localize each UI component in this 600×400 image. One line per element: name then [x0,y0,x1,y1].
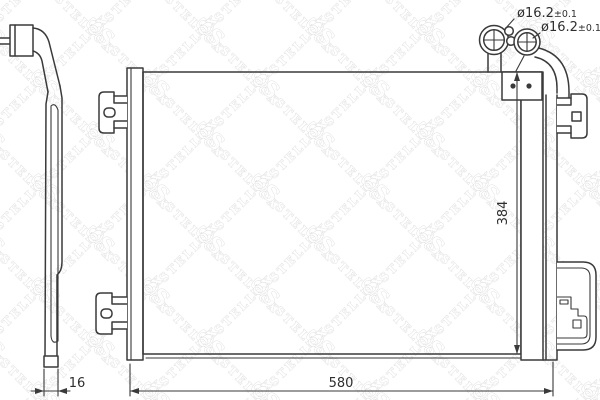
port-top-tolerance: ±0.1 [554,9,577,20]
stellox-watermark: SSTELLOXSSTELLOXSSTELLOXSSTELLOXSSTELLOX… [0,0,600,400]
port-leader-line [516,56,524,71]
port-top-value: ø16.2 [517,6,554,21]
right-tank [521,72,543,360]
dim-label-height: 384 [496,201,511,226]
watermark-text: SSTELLOX [0,387,14,400]
pipe-foot [44,356,58,367]
dim-label-port-side: ø16.2±0.1 [541,20,600,35]
bracket-body [99,92,127,133]
left-tank [127,68,143,360]
port-side-value: ø16.2 [541,20,578,35]
mounting-bracket-top-right [557,94,587,138]
port-side-tolerance: ±0.1 [578,23,600,34]
bolt-hole-right [526,83,531,88]
mounting-bracket-bottom-left [96,293,127,334]
arrow-right [544,388,553,394]
technical-drawing-condenser: SSTELLOXSSTELLOXSSTELLOXSSTELLOXSSTELLOX… [0,0,600,400]
bolt-hole-left [510,83,515,88]
dim-label-width: 580 [329,376,354,391]
dim-label-port-top: ø16.2±0.1 [517,6,577,21]
dim-label-pipe-width: 16 [69,376,86,391]
mounting-bracket-top-left [99,92,127,133]
port-block [502,72,542,100]
side-bar-left-edge [45,92,48,356]
mounting-bracket-bottom-right [557,262,596,350]
connector-block [10,25,33,56]
